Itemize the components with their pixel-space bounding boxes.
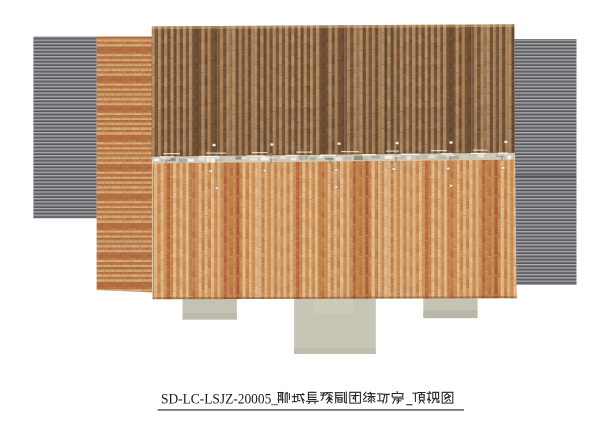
svg-text:SD-LC-LSJZ-20005_: SD-LC-LSJZ-20005_ [161,391,278,408]
